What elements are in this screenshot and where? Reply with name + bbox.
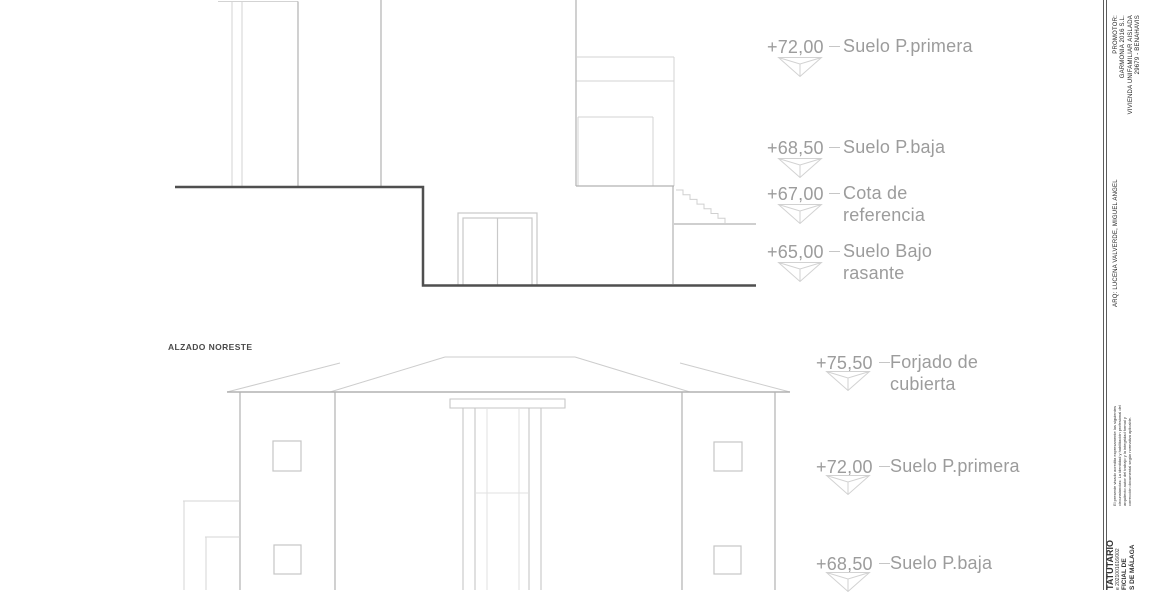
level-label: Suelo P.primera — [843, 37, 973, 81]
level-label: Cota de referencia — [843, 184, 925, 228]
level-value: +72,00 — [767, 37, 824, 58]
level-label-line: Suelo P.primera — [890, 457, 1020, 479]
stairs — [676, 190, 725, 223]
level-label-line — [890, 576, 992, 598]
level-value: +67,00 — [767, 184, 824, 205]
promotor-line: VIVIENDA UNIFAMILIAR AISLADA — [1128, 15, 1136, 307]
level-label: Suelo P.baja — [890, 554, 992, 598]
level-label-line: Suelo P.primera — [843, 37, 973, 59]
level-label-line: Suelo P.baja — [890, 554, 992, 576]
stamp-line: FICIAL DE — [1121, 450, 1129, 590]
window — [714, 546, 741, 574]
level-marker-icon — [777, 261, 823, 283]
architect-name: ARQ: LUCENA VALVERDE, MIGUEL ANGEL — [1112, 179, 1120, 307]
level-label-line — [843, 59, 973, 81]
left-annex — [183, 501, 240, 590]
promotor-line: GARMONIA 2016 S.L. — [1120, 15, 1128, 307]
level-value: +68,50 — [767, 138, 824, 159]
facade-walls — [240, 392, 775, 590]
promotor-label: PROMOTOR: — [1112, 15, 1120, 54]
leader-dash — [879, 466, 890, 467]
portico-glazing — [476, 408, 528, 590]
window — [714, 442, 742, 471]
level-label-line — [843, 160, 945, 182]
level-marker-icon — [777, 56, 823, 78]
level-marker-icon — [825, 474, 871, 496]
promotor-line: 29679 - BENAHAVIS — [1135, 15, 1143, 307]
window — [273, 441, 301, 471]
promotor-details: GARMONIA 2016 S.L. VIVIENDA UNIFAMILIAR … — [1120, 15, 1143, 307]
hip-roof — [227, 357, 790, 392]
leader-dash — [829, 46, 840, 47]
leader-dash — [829, 147, 840, 148]
level-label-line: Cota de — [843, 184, 925, 206]
level-label-line: Suelo Bajo — [843, 242, 932, 264]
windows — [273, 441, 742, 574]
elevation-sheet: +72,00 Suelo P.primera +68,50 Suelo P.ba… — [0, 0, 1165, 590]
bottom-elevation-drawing — [183, 357, 790, 590]
elevation-linework — [0, 0, 1165, 590]
level-label-line — [890, 479, 1020, 501]
level-label-line: referencia — [843, 206, 925, 228]
stamp-line: S DE MÁLAGA — [1129, 450, 1137, 590]
college-stamp: TATUTARIO e 2021001616/002 FICIAL DE S D… — [1105, 450, 1137, 590]
window — [274, 545, 301, 574]
top-elevation-drawing — [175, 0, 756, 286]
titleblock-project-info: ARQ: LUCENA VALVERDE, MIGUEL ANGEL PROMO… — [1112, 15, 1143, 307]
level-label: Forjado de cubierta — [890, 353, 978, 397]
elevation-title: ALZADO NORESTE — [168, 342, 252, 352]
leader-dash — [829, 251, 840, 252]
level-label: Suelo P.primera — [890, 457, 1020, 501]
level-value: +65,00 — [767, 242, 824, 263]
leader-dash — [829, 193, 840, 194]
level-marker-icon — [777, 203, 823, 225]
ground-line — [175, 187, 756, 286]
level-marker-icon — [777, 157, 823, 179]
level-label: Suelo P.baja — [843, 138, 945, 182]
level-marker-icon — [825, 370, 871, 392]
top-walls-medium — [298, 0, 756, 284]
level-label-line: Forjado de — [890, 353, 978, 375]
leader-dash — [879, 362, 890, 363]
level-label-line: cubierta — [890, 375, 978, 397]
level-label: Suelo Bajo rasante — [843, 242, 932, 286]
architect-promotor-row: ARQ: LUCENA VALVERDE, MIGUEL ANGEL PROMO… — [1112, 15, 1120, 307]
level-label-line: Suelo P.baja — [843, 138, 945, 160]
portico — [450, 399, 565, 590]
double-door — [458, 213, 537, 285]
leader-dash — [879, 563, 890, 564]
top-walls-light — [218, 2, 674, 188]
stamp-line: TATUTARIO — [1105, 450, 1115, 590]
level-label-line: rasante — [843, 264, 932, 286]
